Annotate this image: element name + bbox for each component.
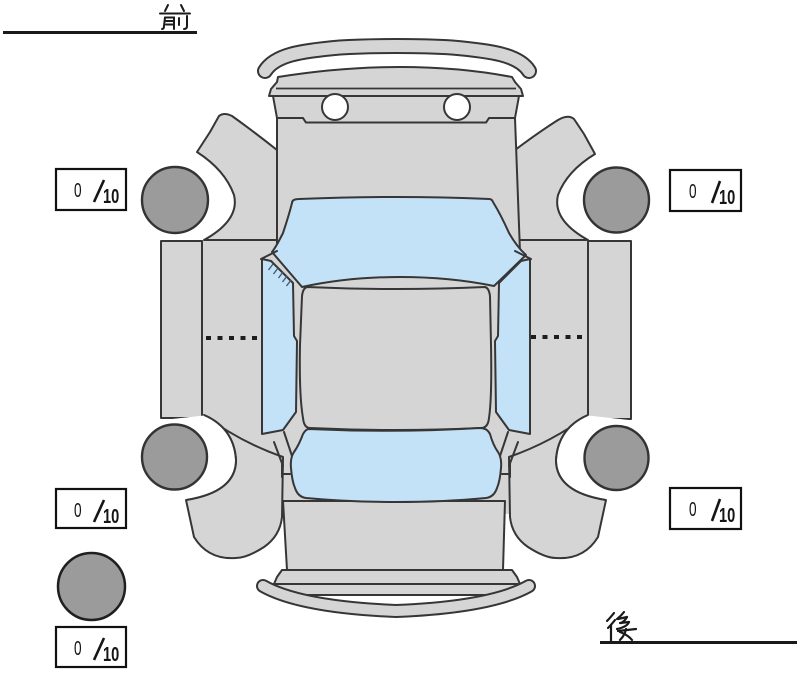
svg-text:0: 0 [74,499,82,521]
svg-text:0: 0 [689,498,697,520]
svg-text:0: 0 [689,180,697,202]
svg-text:10: 10 [103,505,119,528]
svg-text:0: 0 [74,637,82,659]
svg-text:10: 10 [719,186,735,209]
svg-text:0: 0 [74,179,82,201]
svg-text:10: 10 [103,185,119,208]
svg-text:10: 10 [103,643,119,666]
svg-text:10: 10 [719,504,735,527]
